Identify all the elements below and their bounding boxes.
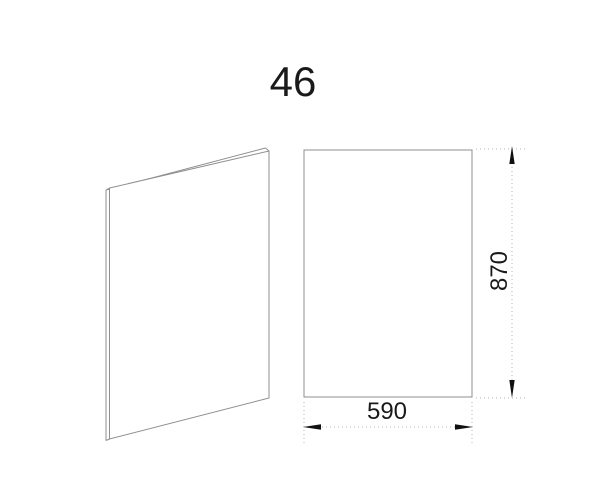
height-arrow-up-icon bbox=[509, 146, 514, 164]
panel-front-view-rect bbox=[304, 150, 472, 397]
width-dimension: 590 bbox=[303, 398, 473, 443]
drawing-canvas: 46 590 bbox=[0, 0, 600, 480]
panel-perspective-view bbox=[106, 148, 269, 441]
panel-top-right-thickness-edge bbox=[266, 148, 270, 151]
width-arrow-left-icon bbox=[303, 424, 321, 429]
panel-bottom-left-thickness-edge bbox=[106, 439, 110, 441]
drawing-title: 46 bbox=[270, 58, 317, 105]
panel-front-view bbox=[304, 150, 472, 397]
width-dimension-label: 590 bbox=[367, 398, 407, 425]
height-dimension: 870 bbox=[476, 146, 528, 398]
height-arrow-down-icon bbox=[509, 380, 514, 398]
panel-front-face bbox=[110, 151, 270, 439]
height-dimension-label: 870 bbox=[486, 251, 513, 291]
width-arrow-right-icon bbox=[455, 424, 473, 429]
